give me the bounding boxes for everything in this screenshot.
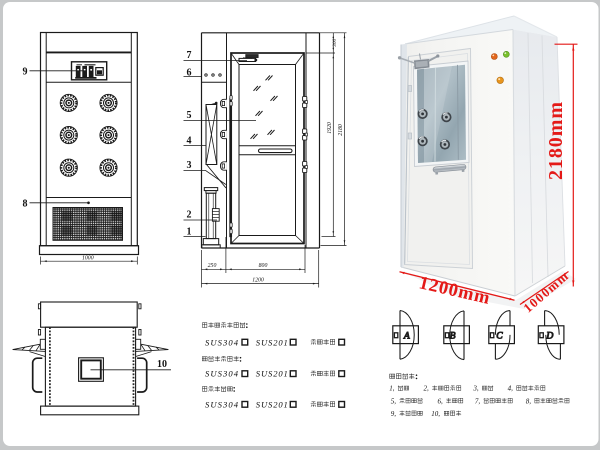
svg-text:1,: 1, (389, 385, 395, 393)
svg-text:B: B (450, 331, 456, 342)
svg-text:SUS304: SUS304 (205, 399, 239, 409)
svg-text:SUS304: SUS304 (205, 369, 239, 379)
svg-text:6: 6 (187, 68, 192, 79)
svg-text:4,: 4, (508, 385, 513, 393)
svg-text:C: C (496, 331, 503, 342)
svg-text:2180mm: 2180mm (545, 102, 567, 180)
svg-text:1920: 1920 (327, 122, 333, 134)
svg-text:3,: 3, (472, 385, 479, 393)
svg-text:A: A (403, 331, 410, 342)
svg-text:6,: 6, (438, 397, 444, 405)
svg-text:8: 8 (23, 199, 28, 210)
svg-text:1200: 1200 (252, 277, 264, 283)
svg-text:3: 3 (187, 160, 192, 171)
svg-text:10,: 10, (431, 410, 440, 418)
svg-text:800: 800 (259, 263, 268, 269)
svg-text:300: 300 (332, 38, 338, 47)
svg-text:1: 1 (187, 226, 192, 237)
svg-text:5,: 5, (391, 397, 397, 405)
svg-text:7: 7 (187, 50, 192, 61)
svg-text:4: 4 (187, 135, 192, 146)
svg-text:9: 9 (23, 67, 28, 78)
svg-text:2,: 2, (424, 385, 430, 393)
svg-text:2180: 2180 (338, 124, 344, 136)
svg-text:SUS304: SUS304 (205, 337, 239, 347)
svg-text:5: 5 (187, 110, 192, 121)
svg-text:SUS201: SUS201 (256, 399, 288, 409)
svg-text:7,: 7, (475, 397, 481, 405)
svg-text:8,: 8, (526, 397, 532, 405)
svg-text:SUS201: SUS201 (256, 337, 288, 347)
svg-text:1000: 1000 (82, 255, 94, 261)
svg-text:SUS201: SUS201 (256, 369, 288, 379)
svg-text:10: 10 (157, 359, 167, 370)
svg-text:9,: 9, (391, 410, 397, 418)
svg-text:250: 250 (208, 263, 217, 269)
svg-text:D: D (545, 331, 553, 342)
svg-text:2: 2 (187, 210, 192, 221)
